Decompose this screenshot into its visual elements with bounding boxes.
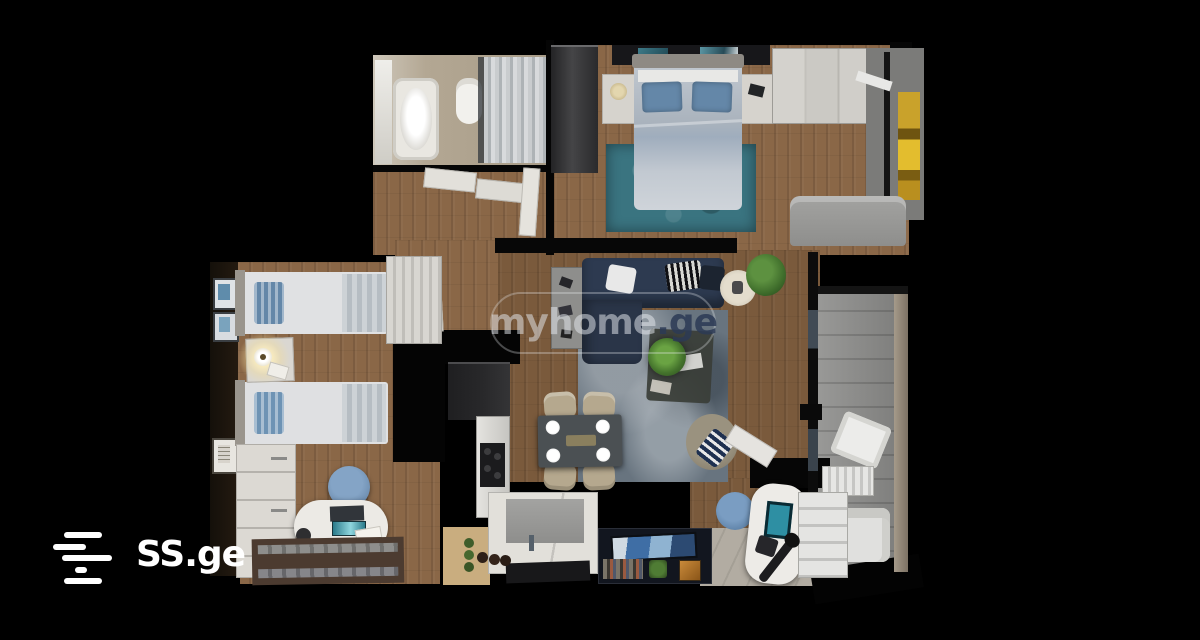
balcony-right-wall xyxy=(894,286,908,572)
frame-art-blue-2 xyxy=(219,317,230,332)
shower-cabin xyxy=(484,57,546,163)
bed-top-fold xyxy=(638,70,738,82)
island-backsplash xyxy=(506,499,584,543)
window-mullion xyxy=(884,52,890,216)
balcony-top-edge xyxy=(818,286,908,294)
sofa-pillow-white xyxy=(605,264,637,294)
ssge-logo-text: SS.ge xyxy=(136,534,245,575)
kids-bed-2-blanket xyxy=(342,384,386,442)
jar-dark-3 xyxy=(500,555,511,566)
duvet-fold-line xyxy=(634,119,742,128)
burner-2 xyxy=(494,453,501,460)
tv-screen xyxy=(610,532,697,562)
console-decor-1 xyxy=(559,276,573,289)
bedroom-wardrobe xyxy=(772,48,872,124)
burner-4 xyxy=(494,472,501,479)
dresser-handle-2 xyxy=(271,509,287,512)
side-table-candle xyxy=(732,281,743,294)
shower-glass-panel xyxy=(478,57,484,163)
kids-rug xyxy=(252,537,405,586)
apartment-floorplan-render: myhome.ge SS.ge xyxy=(0,0,1200,640)
sink-faucet xyxy=(529,535,534,551)
wall-bedroom-living xyxy=(495,238,737,253)
decor-dark-item xyxy=(748,83,765,97)
console-books xyxy=(603,559,643,579)
bottle-green-3 xyxy=(464,562,474,572)
kids-bed-1-blanket xyxy=(342,274,386,332)
bedroom-window-wall xyxy=(866,48,924,220)
bathtub-basin xyxy=(400,88,432,150)
dining-plate-3 xyxy=(546,448,560,462)
ssge-logo-icon xyxy=(52,526,114,582)
kids-wardrobe xyxy=(386,256,442,344)
dining-plate-2 xyxy=(596,419,610,433)
bedroom-closet xyxy=(551,45,598,173)
table-lamp-left xyxy=(610,83,627,100)
utility-shelf-steps xyxy=(798,492,848,578)
dining-table xyxy=(538,414,623,467)
kitchen-floor-mat xyxy=(506,561,591,584)
jar-dark-2 xyxy=(489,554,500,565)
bedroom-armchair xyxy=(790,196,906,246)
screenshot-root: { "watermark": { "brand": "myhome", "dom… xyxy=(0,0,1200,640)
myhome-watermark: myhome.ge xyxy=(490,292,716,354)
bathroom-vanity-counter xyxy=(375,60,392,164)
jar-dark-1 xyxy=(477,552,488,563)
dining-plate-1 xyxy=(546,420,560,434)
bottle-green-1 xyxy=(464,538,474,548)
frame-art-sketch xyxy=(218,445,230,463)
ssge-logo: SS.ge xyxy=(52,526,245,582)
window-view-glow xyxy=(898,92,920,200)
kids-bed-1 xyxy=(238,272,388,334)
console-green-art xyxy=(649,560,667,578)
dresser-handle-1 xyxy=(271,457,287,460)
bed-pillow-left xyxy=(641,81,682,112)
kids-rug-stripe-1 xyxy=(258,543,398,554)
kids-bed-1-pillow xyxy=(254,282,284,324)
double-bed xyxy=(634,58,742,210)
coffee-table-tray xyxy=(650,379,672,395)
console-orange-art xyxy=(679,560,701,581)
watermark-domain-text: .ge xyxy=(656,305,717,341)
sofa-pillow-zigzag xyxy=(664,260,704,293)
kids-bed-1-headboard xyxy=(235,270,245,336)
bottle-green-2 xyxy=(464,550,474,560)
burner-3 xyxy=(484,465,491,472)
kids-bed-2-pillow xyxy=(254,392,284,434)
frame-art-blue xyxy=(218,284,230,300)
burner-1 xyxy=(484,448,491,455)
mullion-block-1 xyxy=(800,404,822,420)
kids-rug-stripe-2 xyxy=(258,567,398,578)
floor-plant xyxy=(746,254,786,296)
kitchen-tall-cabinets xyxy=(448,362,510,420)
dining-runner xyxy=(566,435,596,447)
cooktop xyxy=(480,443,505,487)
desk-laptop-base xyxy=(330,505,365,521)
bed-pillow-right xyxy=(691,81,732,112)
nightstand-left xyxy=(602,74,636,124)
kids-bed-2-headboard xyxy=(235,380,245,446)
dining-plate-4 xyxy=(596,447,610,461)
bed-headboard xyxy=(632,54,744,68)
nightstand-right xyxy=(740,74,776,124)
void-kids-kitchen xyxy=(393,330,445,462)
kids-bed-2 xyxy=(238,382,388,444)
bathtub xyxy=(393,78,439,160)
watermark-brand-text: myhome xyxy=(489,305,656,341)
kids-lamp-finial xyxy=(260,354,266,360)
tv-console xyxy=(598,528,712,584)
